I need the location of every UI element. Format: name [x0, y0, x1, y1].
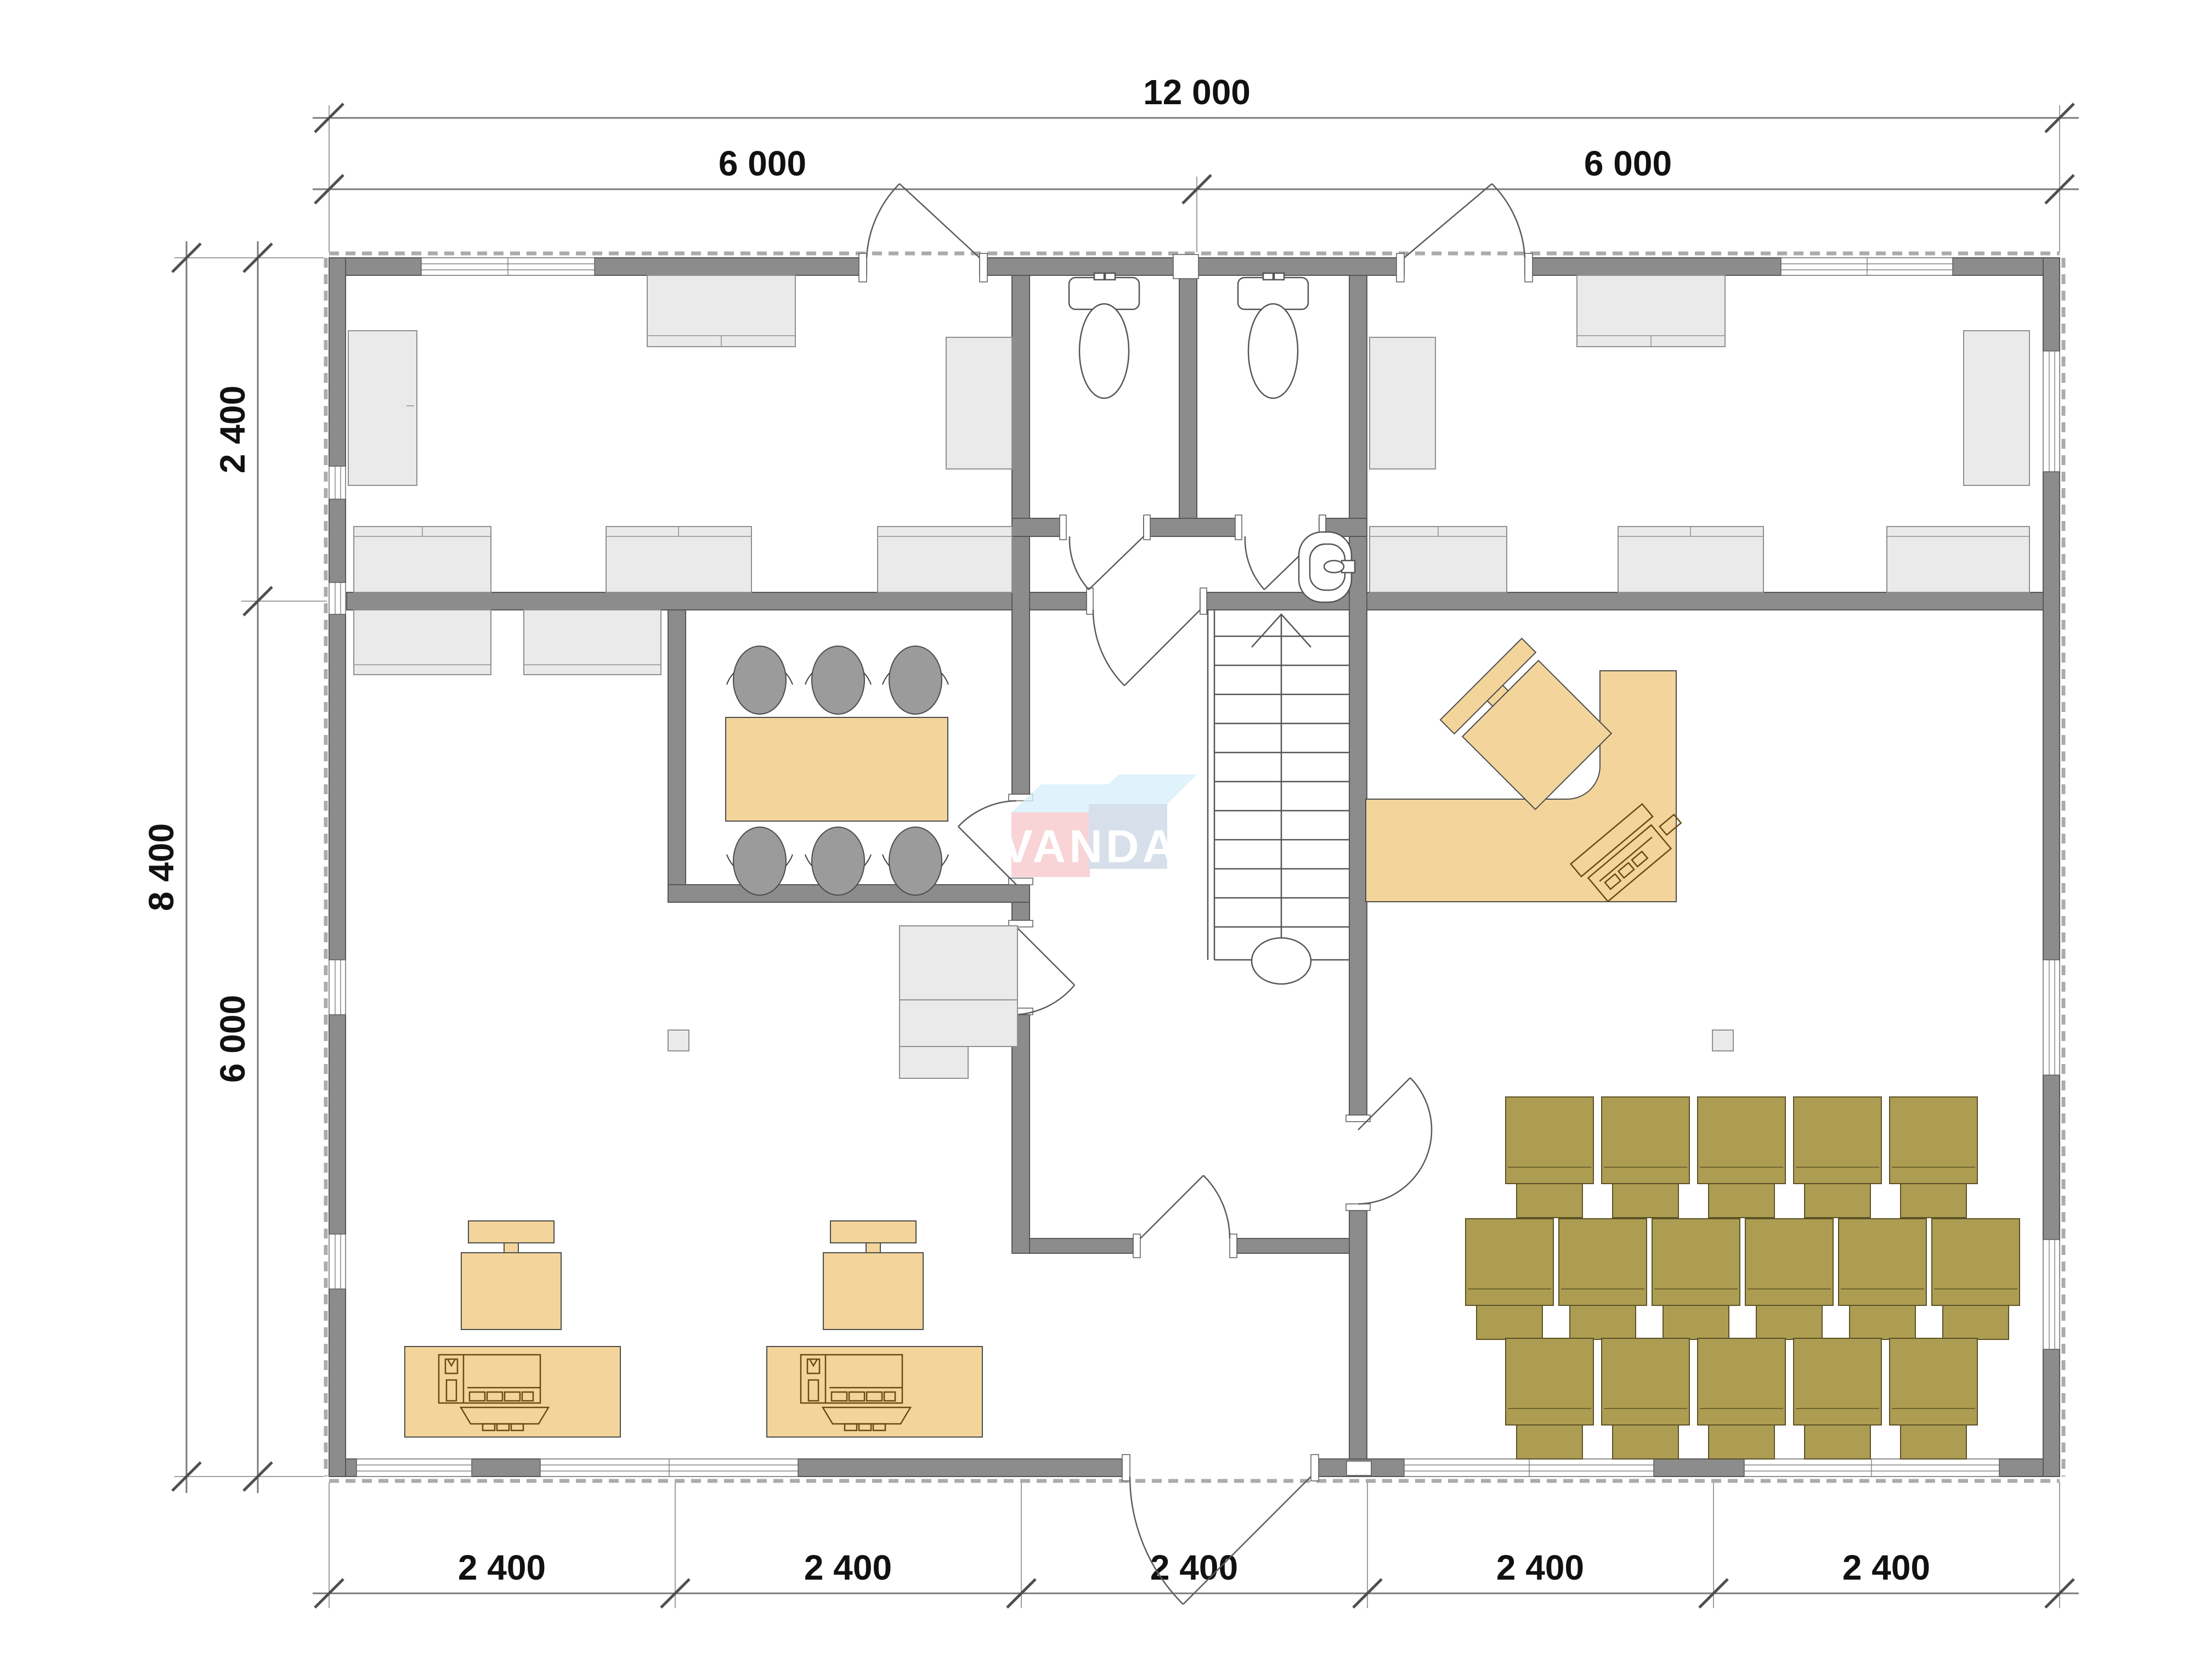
cabinet: [946, 337, 1012, 469]
door-wc-left: [1070, 536, 1144, 590]
window-top-right-room: [1781, 258, 1953, 275]
window-bottom-left-1: [357, 1459, 472, 1477]
wardrobe: [647, 275, 795, 347]
desk-cabinet: [354, 527, 491, 592]
dim-bottom-4: 2 400: [1496, 1548, 1584, 1587]
cabinet: [1370, 337, 1435, 469]
classroom-desk-unit: [1890, 1097, 1977, 1218]
door-office-left: [1016, 927, 1075, 1015]
reception-area: [1366, 638, 1689, 904]
window-bottom-right-2: [1744, 1459, 1999, 1477]
dim-left-total: 8 400: [142, 823, 181, 911]
toilet-left: [1069, 273, 1139, 398]
stairs: [1208, 610, 1349, 984]
cabinet-stack: [900, 926, 1017, 1078]
classroom-desk-unit: [1745, 1219, 1833, 1339]
dim-top-left: 6 000: [719, 144, 806, 183]
window-left-wall-2: [329, 582, 346, 614]
classroom-desk-unit: [1602, 1338, 1689, 1459]
office-chair-stem: [866, 1243, 880, 1253]
logo-top-face-right: [1089, 774, 1197, 804]
classroom-desk-unit: [1698, 1338, 1785, 1459]
floor-marker: [668, 1030, 689, 1051]
window-right-wall-2: [2043, 960, 2060, 1075]
dim-bottom-5: 2 400: [1842, 1548, 1930, 1587]
dim-bottom-1: 2 400: [458, 1548, 546, 1587]
workstation-2: [767, 1221, 982, 1437]
office-chair-seat: [823, 1253, 923, 1330]
classroom-desk-unit: [1932, 1219, 2020, 1339]
desk-cabinet: [1887, 527, 2029, 592]
wardrobe: [1577, 275, 1725, 347]
office-chair-seat: [461, 1253, 561, 1330]
floor-plan-drawing: 12 000 6 000 6 000 8 400 2 400 6 000 2 4…: [0, 0, 2194, 1680]
desk-cabinet: [524, 610, 661, 675]
window-bottom-right-1: [1404, 1459, 1654, 1477]
desk-cabinet: [354, 610, 491, 675]
classroom-desk-unit: [1698, 1097, 1785, 1218]
wc-fixtures: [1069, 273, 1355, 602]
window-left-wall-3: [329, 960, 346, 1015]
window-right-wall-1: [2043, 351, 2060, 472]
meeting-chair: [727, 646, 793, 714]
meeting-chair: [805, 646, 871, 714]
cabinet: [348, 331, 417, 485]
workstation-1: [405, 1221, 620, 1437]
floor-marker: [1712, 1030, 1733, 1051]
vanda-watermark: VANDA: [1002, 774, 1197, 877]
office-chair: [830, 1221, 916, 1243]
desk-cabinet: [1370, 527, 1507, 592]
classroom-desk-unit: [1559, 1219, 1647, 1339]
meeting-table: [726, 717, 948, 821]
dim-left-lower: 6 000: [213, 995, 252, 1083]
classroom-desk-unit: [1506, 1338, 1593, 1459]
desk-cabinet: [606, 527, 751, 592]
logo-text: VANDA: [1002, 821, 1179, 872]
meeting-chair: [883, 646, 948, 714]
toilet-right: [1238, 273, 1308, 398]
door-hall-corridor: [1093, 610, 1200, 686]
classroom-desk-unit: [1652, 1219, 1740, 1339]
classroom-desk-unit: [1506, 1097, 1593, 1218]
window-top-left-room: [421, 258, 595, 275]
desk-cabinet: [1618, 527, 1763, 592]
dim-left-upper: 2 400: [213, 386, 252, 473]
classroom-desk-unit: [1839, 1219, 1926, 1339]
stair-start-marker: [1252, 938, 1311, 984]
classroom-desk-unit: [1466, 1219, 1553, 1339]
door-vestibule: [1140, 1175, 1230, 1238]
door-top-left-room: [867, 184, 980, 258]
cabinet: [1964, 331, 2029, 485]
window-bottom-left-2: [540, 1459, 798, 1477]
door-top-right-room: [1404, 184, 1525, 258]
dim-bottom-2: 2 400: [804, 1548, 892, 1587]
dim-top-right: 6 000: [1584, 144, 1672, 183]
classroom-desk-unit: [1794, 1338, 1881, 1459]
classroom-desk-unit: [1794, 1097, 1881, 1218]
floor-plan-page: 12 000 6 000 6 000 8 400 2 400 6 000 2 4…: [0, 0, 2194, 1680]
office-chair: [468, 1221, 554, 1243]
office-chair-stem: [504, 1243, 518, 1253]
meeting-room-furniture: [726, 646, 948, 895]
dim-top-total: 12 000: [1143, 72, 1251, 112]
window-left-wall-4: [329, 1234, 346, 1289]
door-classroom: [1358, 1078, 1432, 1204]
reception-chair: [1440, 638, 1614, 812]
window-left-wall-1: [329, 466, 346, 499]
classroom-desk-unit: [1890, 1338, 1977, 1459]
sink: [1299, 532, 1355, 602]
classroom-desk-unit: [1602, 1097, 1689, 1218]
classroom-seating: [1466, 1097, 2020, 1459]
desk-cabinet: [878, 527, 1012, 592]
window-right-wall-3: [2043, 1240, 2060, 1349]
